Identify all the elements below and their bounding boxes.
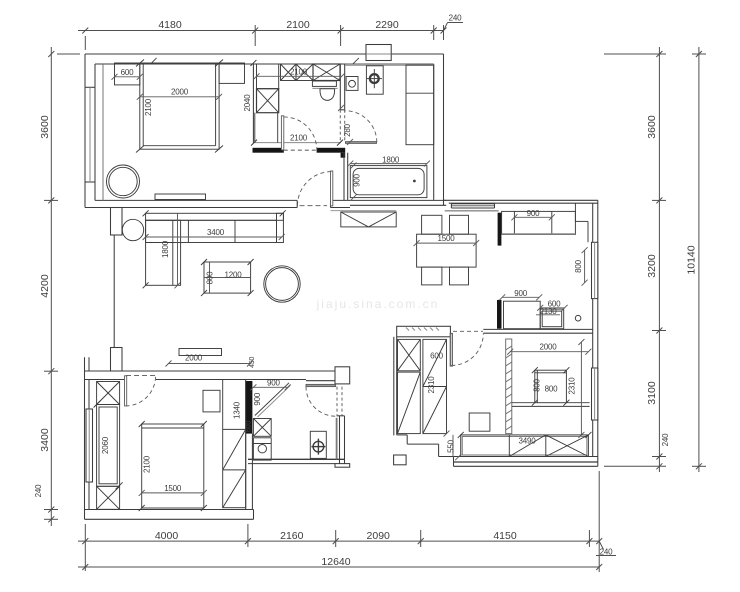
svg-text:jiaju.sina.com.cn: jiaju.sina.com.cn: [316, 297, 440, 311]
svg-text:900: 900: [353, 173, 362, 186]
svg-text:900: 900: [514, 289, 527, 298]
svg-text:2090: 2090: [367, 530, 391, 542]
svg-text:240: 240: [661, 433, 670, 446]
svg-text:2160: 2160: [280, 530, 304, 542]
svg-text:2100: 2100: [290, 134, 308, 143]
svg-text:1800: 1800: [382, 156, 400, 165]
svg-text:1200: 1200: [225, 271, 243, 280]
svg-text:2310: 2310: [427, 376, 436, 394]
svg-text:3600: 3600: [39, 115, 51, 139]
svg-text:12640: 12640: [321, 556, 350, 568]
svg-text:4180: 4180: [158, 19, 182, 31]
svg-text:2060: 2060: [101, 436, 110, 454]
svg-text:2130: 2130: [540, 307, 558, 316]
svg-text:900: 900: [253, 392, 262, 405]
svg-text:280: 280: [343, 123, 352, 136]
svg-text:3100: 3100: [646, 381, 658, 405]
svg-text:800: 800: [574, 259, 583, 272]
svg-text:600: 600: [430, 352, 443, 361]
svg-text:240: 240: [449, 14, 462, 23]
svg-text:2000: 2000: [185, 354, 203, 363]
svg-text:240: 240: [34, 484, 43, 497]
svg-text:2100: 2100: [290, 68, 308, 77]
svg-text:2000: 2000: [171, 88, 189, 97]
svg-text:2000: 2000: [540, 343, 558, 352]
svg-text:800: 800: [545, 385, 558, 394]
svg-text:4200: 4200: [39, 274, 51, 298]
svg-text:2100: 2100: [144, 98, 153, 116]
svg-text:550: 550: [447, 439, 456, 452]
svg-text:240: 240: [600, 548, 613, 557]
svg-text:2310: 2310: [568, 377, 577, 395]
svg-text:1800: 1800: [161, 240, 170, 258]
svg-text:2290: 2290: [375, 19, 399, 31]
svg-text:1340: 1340: [232, 401, 241, 419]
svg-text:3400: 3400: [207, 228, 225, 237]
svg-text:2100: 2100: [143, 455, 152, 473]
svg-text:10140: 10140: [686, 245, 698, 274]
svg-text:450: 450: [249, 356, 256, 367]
svg-text:800: 800: [206, 271, 215, 284]
svg-text:3200: 3200: [646, 254, 658, 278]
svg-text:3400: 3400: [39, 428, 51, 452]
svg-text:600: 600: [121, 68, 134, 77]
svg-text:3600: 3600: [646, 115, 658, 139]
svg-text:900: 900: [267, 379, 280, 388]
svg-text:1500: 1500: [164, 484, 182, 493]
svg-text:1500: 1500: [438, 234, 456, 243]
svg-text:3490: 3490: [519, 437, 537, 446]
svg-text:4000: 4000: [155, 530, 179, 542]
svg-text:2040: 2040: [243, 94, 252, 112]
svg-text:600: 600: [245, 421, 252, 432]
svg-text:4150: 4150: [493, 530, 517, 542]
svg-text:800: 800: [533, 378, 542, 391]
svg-text:900: 900: [527, 209, 540, 218]
svg-text:2100: 2100: [286, 19, 310, 31]
